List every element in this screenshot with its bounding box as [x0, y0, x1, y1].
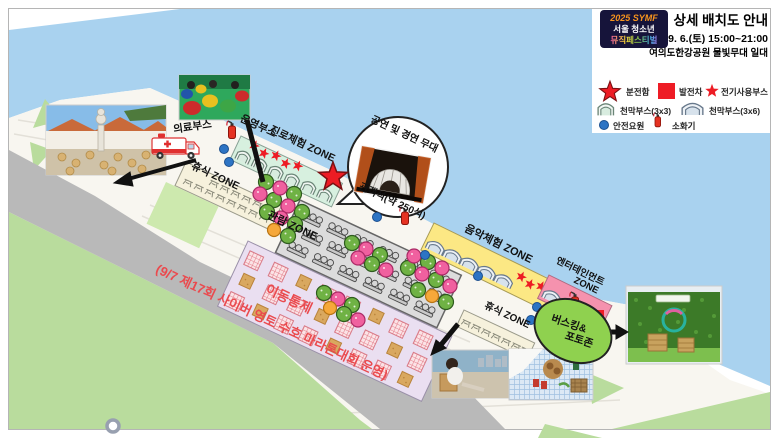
poster-title: 상세 배치도 안내 [674, 12, 768, 28]
legend-tent-small-icon [598, 104, 613, 116]
tree-ball-pink [273, 181, 287, 195]
tree-ball-pink [351, 251, 365, 265]
photo-green-wall-photozone [626, 286, 722, 364]
safety-staff-dot-icon [421, 251, 430, 260]
safety-staff-dot-icon [220, 145, 229, 154]
tree-ball-orange [426, 290, 439, 303]
tree-ball-green [411, 283, 426, 298]
legend-red-square-icon [658, 83, 675, 99]
safety-staff-dot-icon [225, 158, 234, 167]
tree-ball-pink [443, 279, 457, 293]
tree-ball-green [317, 286, 332, 301]
photo-beanbag-lounge [179, 75, 250, 120]
photo-village-plaza [46, 105, 166, 175]
safety-staff-dot-icon [474, 272, 483, 281]
road-marker-dot [107, 420, 119, 432]
photo-picnic-river [432, 350, 509, 398]
tree-ball-green [345, 236, 360, 251]
legend-label-5: 안전요원 [613, 121, 644, 131]
tree-ball-pink [379, 263, 393, 277]
festival-logo: 2025 SYMF 서울 청소년 뮤직페스티벌 [600, 10, 668, 48]
tree-ball-pink [351, 313, 365, 327]
logo-line-2: 서울 청소년 [613, 24, 655, 34]
legend-label-6: 소화기 [672, 121, 695, 131]
title-legend-panel: 2025 SYMF 서울 청소년 뮤직페스티벌 상세 배치도 안내 9. 6.(… [592, 9, 770, 133]
tree-ball-green [365, 257, 380, 272]
legend-blue-dot-icon [600, 121, 609, 130]
event-venue: 여의도한강공원 물빛무대 일대 [649, 47, 768, 59]
legend-label-3: 천막부스(3x3) [620, 106, 671, 116]
legend-label-0: 분전함 [626, 87, 650, 97]
legend-label-2: 전기사용부스 [721, 87, 768, 97]
site-map-svg: 의료부스 운영부스 진로체험 ZONE 휴식 ZONE 관람 ZONE 관객석(… [0, 0, 779, 438]
safety-staff-dot-icon [373, 213, 382, 222]
tree-ball-green [439, 295, 454, 310]
legend-label-1: 발전차 [679, 87, 703, 97]
tree-ball-pink [253, 187, 267, 201]
logo-line-3: 뮤직페스티벌 [611, 35, 658, 45]
logo-line-1: 2025 SYMF [609, 13, 658, 23]
event-datetime: 9. 6.(토) 15:00~21:00 [668, 33, 768, 45]
tree-ball-pink [415, 267, 429, 281]
legend-tent-large-icon [682, 103, 703, 115]
festival-layout-poster: 의료부스 운영부스 진로체험 ZONE 휴식 ZONE 관람 ZONE 관객석(… [0, 0, 779, 438]
legend-label-4: 천막부스(3x6) [709, 106, 760, 116]
tree-ball-pink [435, 261, 449, 275]
tree-ball-green [337, 307, 352, 322]
tree-ball-orange [324, 302, 337, 315]
tree-ball-pink [407, 249, 421, 263]
